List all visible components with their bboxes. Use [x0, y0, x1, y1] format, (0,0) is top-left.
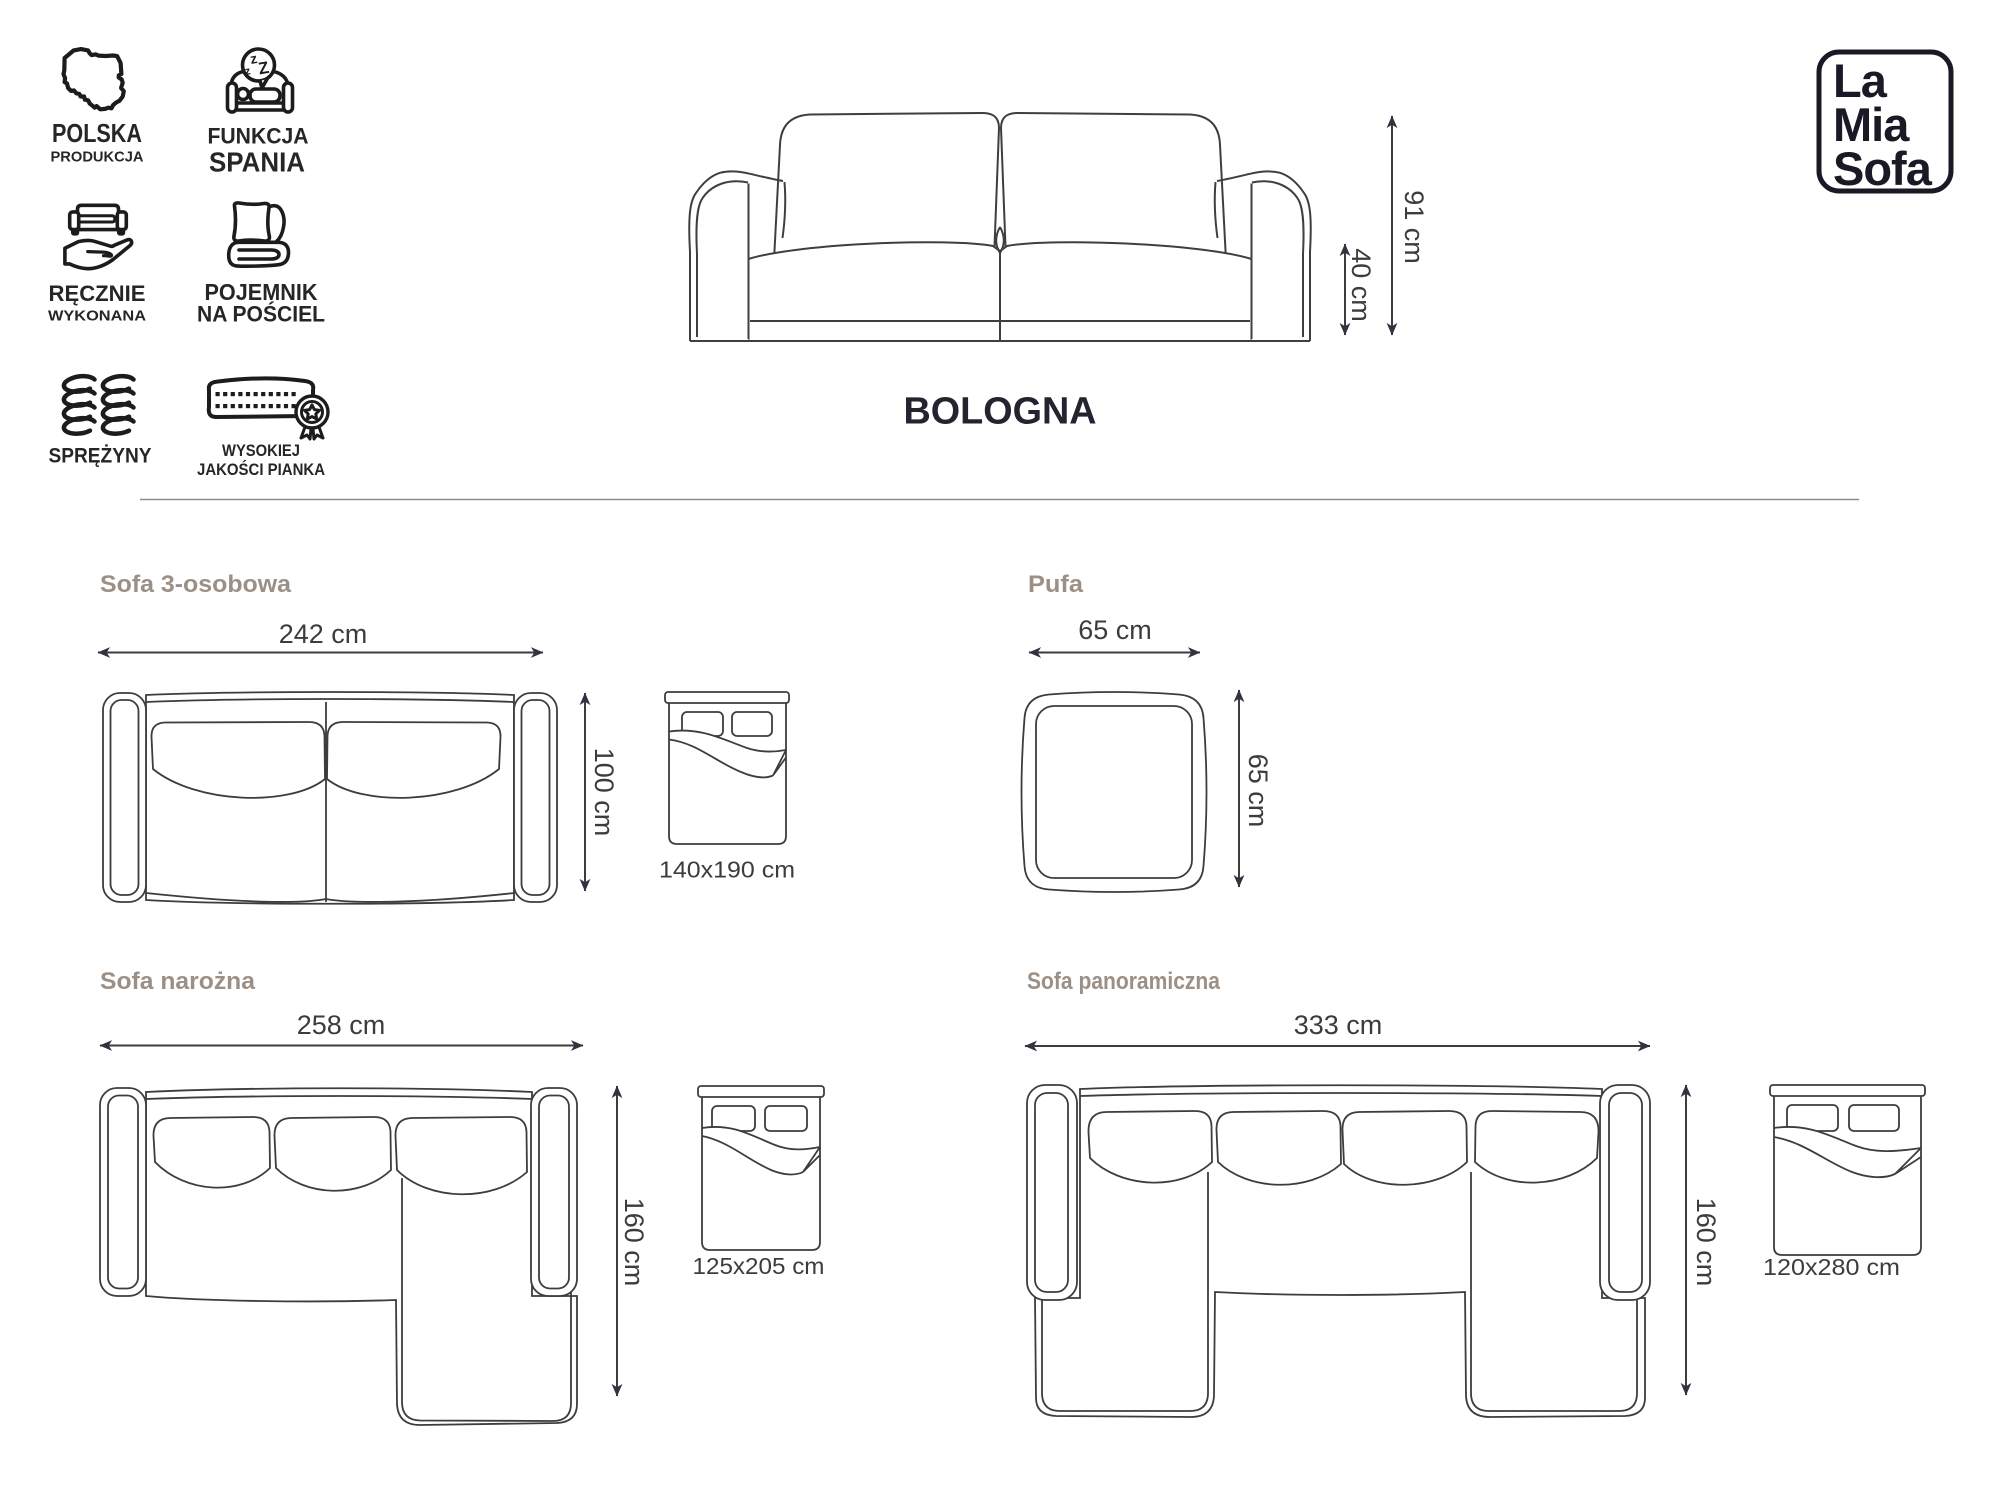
svg-text:65 cm: 65 cm	[1078, 615, 1152, 645]
svg-text:242 cm: 242 cm	[279, 619, 368, 649]
svg-text:100 cm: 100 cm	[589, 748, 619, 837]
svg-text:JAKOŚCI PIANKA: JAKOŚCI PIANKA	[197, 460, 325, 479]
svg-text:RĘCZNIE: RĘCZNIE	[49, 281, 146, 306]
svg-text:120x280 cm: 120x280 cm	[1763, 1254, 1900, 1280]
svg-text:POLSKA: POLSKA	[52, 118, 142, 148]
svg-text:91 cm: 91 cm	[1399, 190, 1429, 264]
svg-text:40 cm: 40 cm	[1346, 248, 1376, 322]
svg-text:PRODUKCJA: PRODUKCJA	[51, 149, 144, 166]
svg-text:FUNKCJA: FUNKCJA	[208, 124, 309, 149]
svg-text:65 cm: 65 cm	[1243, 754, 1273, 828]
svg-text:140x190 cm: 140x190 cm	[659, 857, 795, 883]
svg-text:SPANIA: SPANIA	[209, 147, 305, 178]
svg-text:Pufa: Pufa	[1028, 571, 1084, 598]
svg-text:Sofa: Sofa	[1833, 142, 1933, 195]
svg-text:258 cm: 258 cm	[297, 1010, 386, 1040]
svg-text:333 cm: 333 cm	[1294, 1010, 1383, 1040]
svg-text:SPRĘŻYNY: SPRĘŻYNY	[49, 445, 152, 468]
svg-text:160 cm: 160 cm	[1691, 1198, 1721, 1287]
svg-text:NA POŚCIEL: NA POŚCIEL	[197, 302, 325, 327]
svg-text:Sofa panoramiczna: Sofa panoramiczna	[1027, 968, 1221, 995]
svg-text:WYKONANA: WYKONANA	[48, 309, 147, 325]
svg-text:160 cm: 160 cm	[619, 1198, 649, 1287]
svg-text:WYSOKIEJ: WYSOKIEJ	[222, 441, 300, 460]
svg-text:Sofa 3-osobowa: Sofa 3-osobowa	[100, 571, 292, 598]
svg-text:125x205 cm: 125x205 cm	[693, 1253, 825, 1279]
svg-text:BOLOGNA: BOLOGNA	[904, 391, 1097, 433]
svg-text:Sofa narożna: Sofa narożna	[100, 968, 256, 995]
